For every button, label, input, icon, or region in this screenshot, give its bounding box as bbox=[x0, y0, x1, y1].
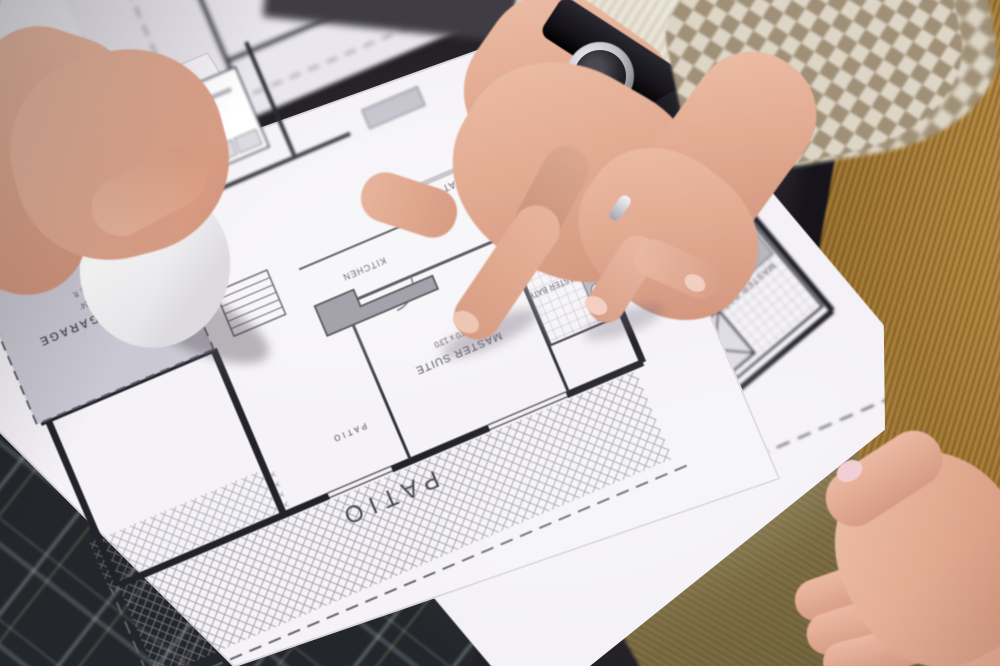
vignette-overlay bbox=[0, 0, 1000, 666]
photo-scene: MASTER BATH PATIO bbox=[0, 0, 1000, 666]
